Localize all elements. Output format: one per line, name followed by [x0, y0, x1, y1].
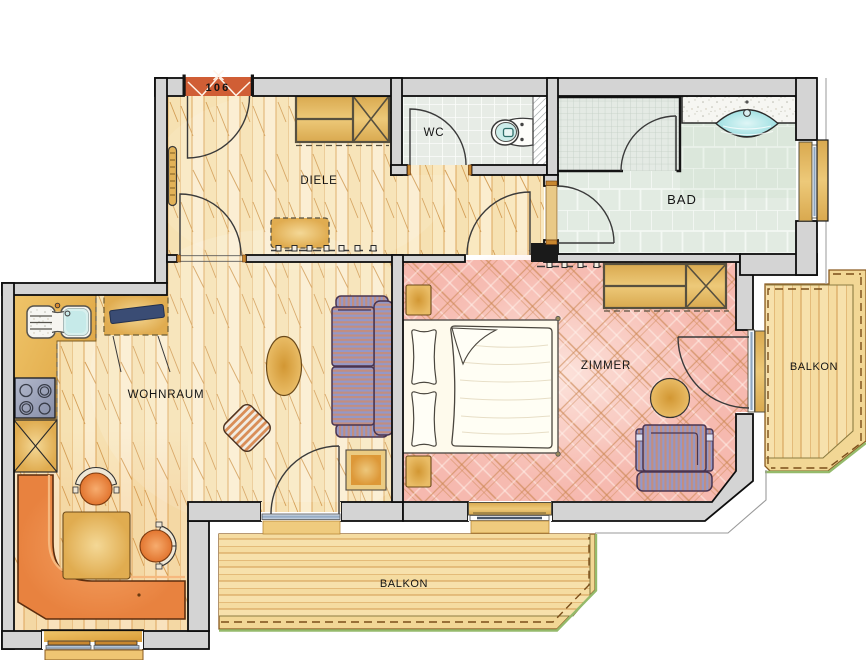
- svg-text:BALKON: BALKON: [380, 578, 428, 590]
- svg-text:BAD: BAD: [667, 192, 697, 207]
- svg-text:WC: WC: [424, 127, 445, 139]
- svg-text:ZIMMER: ZIMMER: [581, 360, 631, 372]
- svg-text:DIELE: DIELE: [300, 175, 337, 187]
- svg-text:106: 106: [206, 82, 231, 94]
- svg-text:WOHNRAUM: WOHNRAUM: [128, 389, 205, 401]
- svg-text:BALKON: BALKON: [790, 361, 838, 373]
